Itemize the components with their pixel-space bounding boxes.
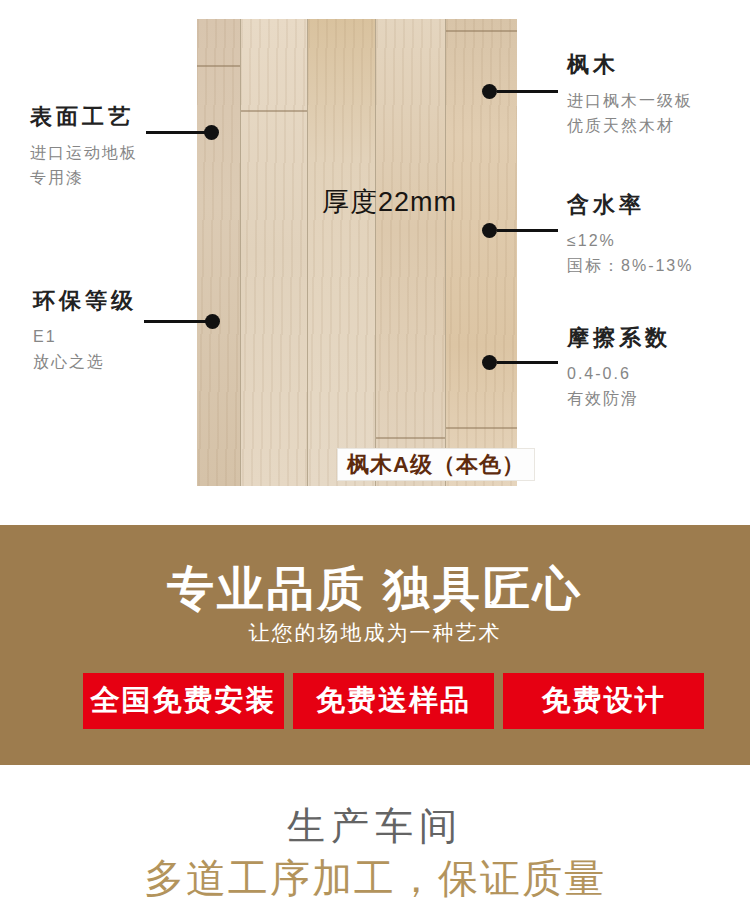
annotation-detail: ≤12% <box>567 229 693 254</box>
annotation-detail: 有效防滑 <box>567 387 671 412</box>
wood-plank <box>240 19 307 486</box>
annotation-surface-craft: 表面工艺 进口运动地板 专用漆 <box>30 102 138 191</box>
wood-plank <box>375 19 445 486</box>
connector-dot <box>205 314 220 329</box>
connector-dot <box>482 355 497 370</box>
banner-title: 专业品质 独具匠心 <box>0 558 750 621</box>
annotation-eco-grade: 环保等级 E1 放心之选 <box>33 286 137 375</box>
annotation-title: 表面工艺 <box>30 102 138 132</box>
annotation-title: 环保等级 <box>33 286 137 316</box>
annotation-title: 枫木 <box>567 50 693 80</box>
connector-line <box>497 229 558 232</box>
annotation-detail: 进口运动地板 <box>30 141 138 166</box>
annotation-detail: 国标：8%-13% <box>567 254 693 279</box>
promo-page: 厚度22mm 枫木A级（本色） 表面工艺 进口运动地板 专用漆 环保等级 E1 … <box>0 0 750 912</box>
banner-button-row: 全国免费安装 免费送样品 免费设计 <box>83 673 704 729</box>
annotation-detail: 进口枫木一级板 <box>567 89 693 114</box>
quality-slogan: 多道工序加工，保证质量 <box>0 851 750 906</box>
free-design-button[interactable]: 免费设计 <box>503 673 704 729</box>
annotation-detail: 优质天然木材 <box>567 114 693 139</box>
connector-line <box>497 361 558 364</box>
connector-line <box>497 90 558 93</box>
thickness-overlay-label: 厚度22mm <box>322 184 457 220</box>
free-install-button[interactable]: 全国免费安装 <box>83 673 284 729</box>
annotation-title: 含水率 <box>567 190 693 220</box>
annotation-maple: 枫木 进口枫木一级板 优质天然木材 <box>567 50 693 139</box>
banner-subtitle: 让您的场地成为一种艺术 <box>0 619 750 647</box>
workshop-heading: 生产车间 <box>0 801 750 852</box>
annotation-title: 摩擦系数 <box>567 323 671 353</box>
annotation-detail: 放心之选 <box>33 350 137 375</box>
connector-dot <box>482 84 497 99</box>
gold-banner-section: 专业品质 独具匠心 让您的场地成为一种艺术 全国免费安装 免费送样品 免费设计 <box>0 525 750 765</box>
connector-line <box>146 131 208 134</box>
connector-dot <box>204 125 219 140</box>
grade-badge: 枫木A级（本色） <box>337 448 535 481</box>
annotation-detail: 专用漆 <box>30 166 138 191</box>
annotation-detail: 0.4-0.6 <box>567 362 671 387</box>
wood-floor-photo <box>197 19 517 486</box>
annotation-detail: E1 <box>33 325 137 350</box>
annotation-friction: 摩擦系数 0.4-0.6 有效防滑 <box>567 323 671 412</box>
connector-line <box>144 320 208 323</box>
wood-plank <box>197 19 240 486</box>
product-annotation-section: 厚度22mm 枫木A级（本色） 表面工艺 进口运动地板 专用漆 环保等级 E1 … <box>0 0 750 525</box>
connector-dot <box>482 223 497 238</box>
annotation-moisture: 含水率 ≤12% 国标：8%-13% <box>567 190 693 279</box>
free-sample-button[interactable]: 免费送样品 <box>293 673 494 729</box>
wood-plank <box>307 19 375 486</box>
